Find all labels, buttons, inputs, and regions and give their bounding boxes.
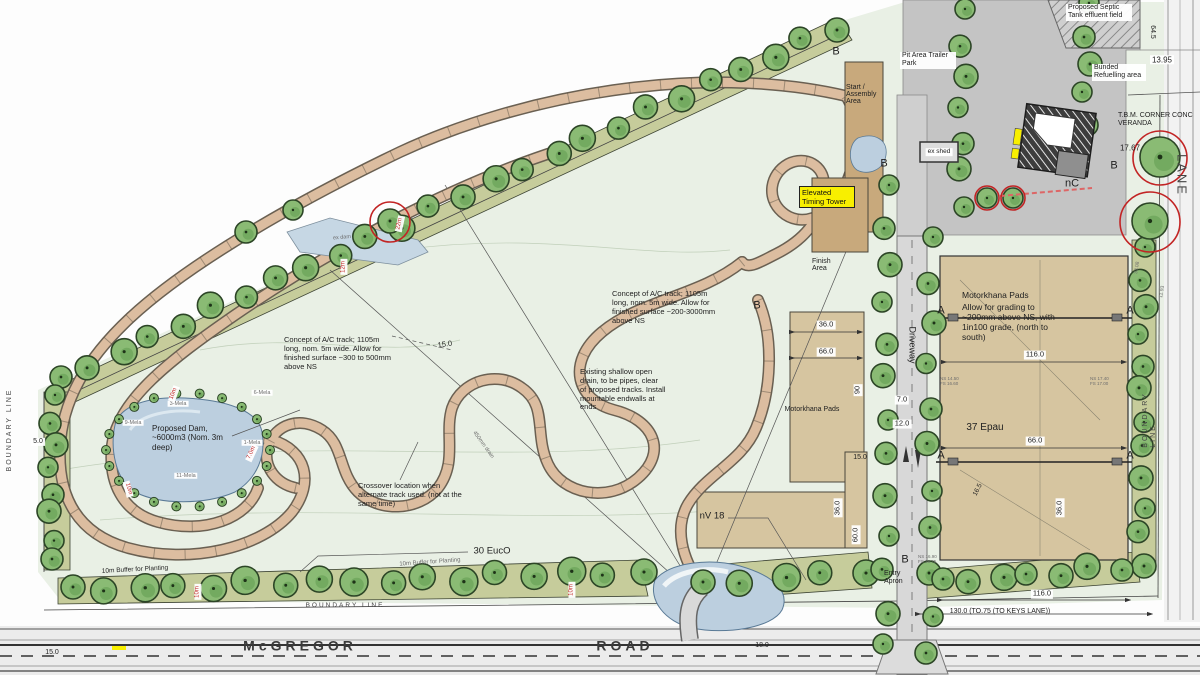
section-marker-a2-right: A — [1126, 450, 1133, 463]
note-crossover: Crossover location when alternate track … — [358, 482, 462, 509]
plan-labels: Start / Assembly Area Elevated Timing To… — [0, 0, 1200, 675]
section-marker-b-pond: B — [880, 158, 887, 171]
label-road-road: ROAD — [596, 638, 653, 655]
tag-11-mela: 11-Mela — [174, 473, 197, 479]
dim-64-5: 64.5 — [1148, 25, 1156, 39]
note-bunded-refuelling: Bunded Refuelling area — [1092, 64, 1146, 81]
note-pit-area: Pit Area Trailer Park — [900, 52, 956, 69]
dim-36-0-center: 36.0 — [817, 321, 836, 330]
label-lane: LANE — [1174, 154, 1189, 196]
dim-33-08: 33.08 — [1134, 261, 1142, 274]
elevated-timing-tower-label: Elevated Timing Tower — [799, 186, 855, 208]
dim-13-95: 13.95 — [1150, 55, 1174, 64]
dim-130-keys-lane: 130.0 (TO.75 (TO KEYS LANE)) — [950, 608, 1051, 616]
label-nv18: nV 18 — [700, 510, 725, 521]
section-marker-b-house: B — [1110, 160, 1117, 173]
note-concept-track-center: Concept of A/C track; 1105m long, nom. 5… — [612, 290, 724, 325]
tag-6-mela: 6-Mela — [252, 390, 273, 396]
label-boundary-left: BOUNDARY LINE — [6, 389, 14, 472]
section-marker-b-start: B — [832, 46, 839, 59]
redtick-10m-track-2: 10m — [123, 481, 134, 498]
section-marker-a1-right: A — [1126, 305, 1133, 318]
dim-11-93: 11.93 — [1159, 286, 1167, 299]
redtick-10m-buffer-2: 10m — [568, 582, 575, 598]
dim-15-0-track: 15.0 — [437, 340, 453, 351]
dim-18-0: 18.0 — [755, 642, 769, 650]
note-motorkhana-grading: Allow for grading to ~200mm above NS, wi… — [962, 302, 1062, 342]
label-motorkhana-center: Motorkhana Pads — [785, 406, 840, 414]
label-road-mcgregor: McGREGOR — [243, 638, 357, 655]
label-ex-shed: ex shed — [926, 148, 953, 156]
dim-116-0-bottom: 116.0 — [1031, 590, 1053, 599]
dim-36-0-center-v: 36.0 — [834, 499, 843, 518]
label-buffer-planting-1: 10m Buffer for Planting — [102, 564, 169, 575]
section-marker-b-entry: B — [901, 554, 908, 567]
label-450mm-drain: 450mm drain — [471, 430, 495, 460]
dim-12-0: 12.0 — [893, 420, 912, 429]
spot-level-3: NS 16.90 FS 16.75 — [918, 554, 938, 565]
spot-level-1: NS 14.50 FS 16.60 — [940, 376, 960, 387]
section-marker-b-track: B — [753, 300, 760, 313]
tag-9-mela: 9-Mela — [123, 420, 144, 426]
redtick-7-0m-track: 7.0m — [245, 444, 259, 463]
label-buffer-planting-2: 10m Buffer for Planting — [399, 557, 461, 568]
redtick-22m: 22m — [395, 216, 405, 233]
finish-area-label: Finish Area — [812, 258, 844, 272]
label-driveway: Driveway — [907, 326, 918, 363]
label-30-euco: 30 EucO — [474, 545, 511, 556]
dim-66-0-center: 66.0 — [817, 348, 836, 357]
label-ex-dam: ex dam — [333, 234, 352, 242]
label-entry-apron: Entry Apron — [884, 570, 912, 587]
dim-90-center: 90 — [854, 384, 863, 396]
start-assembly-label: Start / Assembly Area — [846, 84, 882, 105]
tag-3-mela: 3-Mela — [168, 401, 189, 407]
dim-15-0-road: 15.0 — [45, 649, 59, 657]
dim-15-0-driveway: 15.0 — [853, 454, 867, 462]
note-septic-tank: Proposed Septic Tank effluent field — [1066, 4, 1132, 21]
dim-7-0: 7.0 — [895, 396, 909, 405]
label-proposed-dam: Proposed Dam, ~6000m3 (Nom. 3m deep) — [152, 424, 234, 452]
note-concept-track-left: Concept of A/C track; 1105m long, nom. 5… — [284, 336, 392, 371]
dim-66-0-right: 66.0 — [1026, 437, 1045, 446]
dim-36-0-right-v: 36.0 — [1056, 499, 1065, 518]
label-motorkhana-right: Motorkhana Pads — [962, 290, 1052, 300]
label-boundary-bottom: BOUNDARY LINE — [306, 602, 385, 610]
redtick-12m: 12m — [340, 259, 347, 275]
spot-level-2: NS 17.40 FS 17.00 — [1090, 376, 1110, 387]
site-plan-drawing: Start / Assembly Area Elevated Timing To… — [0, 0, 1200, 675]
note-tbm-corner: T.B.M. CORNER CONC VERANDA — [1118, 112, 1198, 129]
dim-5-0-left: 5.0 — [31, 438, 45, 446]
dim-116-0-right: 116.0 — [1024, 351, 1046, 360]
note-open-drain: Existing shallow open drain, to be pipes… — [580, 368, 666, 412]
label-37-epau: 37 Epau — [966, 422, 1003, 434]
redtick-10m-buffer-1: 10m — [194, 584, 201, 600]
section-marker-a1-left: A — [937, 305, 944, 318]
section-marker-a2-left: A — [937, 450, 944, 463]
dim-16-5: 16.5 — [972, 483, 985, 498]
dim-60-0-center-v: 60.0 — [852, 526, 861, 545]
label-nc: nC — [1065, 178, 1079, 191]
label-boundary-right: BOUNDARY LINE — [1142, 392, 1159, 447]
value-tbm-level: 17.67 — [1120, 143, 1140, 152]
